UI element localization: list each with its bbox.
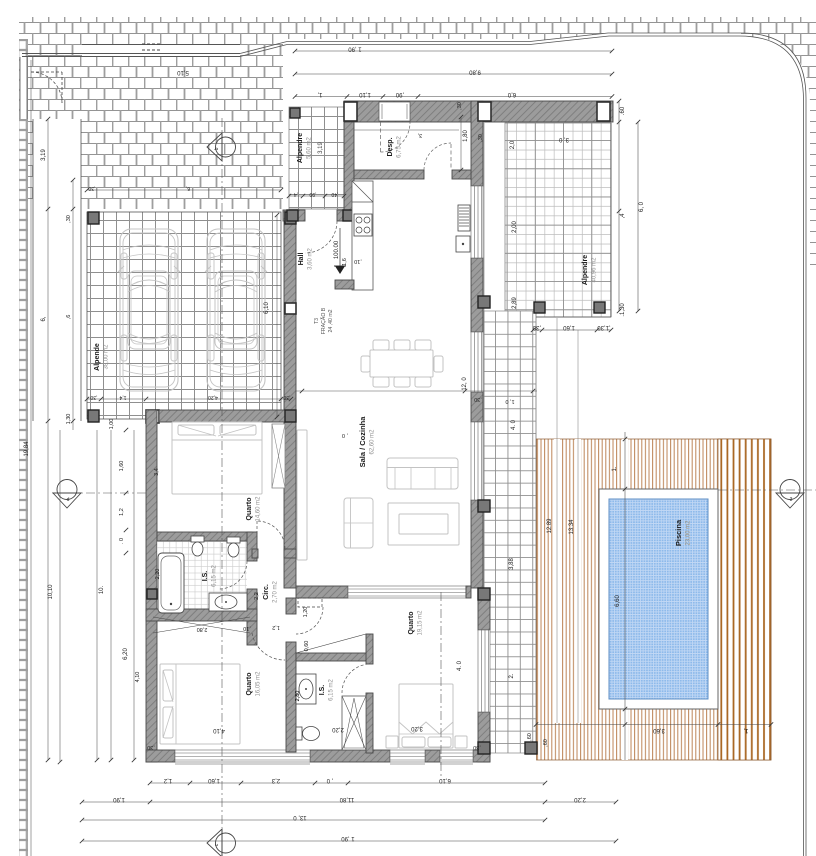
svg-text:10.: 10.	[99, 585, 105, 594]
svg-text:3,19: 3,19	[41, 149, 47, 161]
svg-text:3,20: 3,20	[411, 725, 423, 731]
svg-text:38,00 m2: 38,00 m2	[104, 344, 110, 370]
svg-text:2,89: 2,89	[512, 297, 518, 309]
svg-text:Quarto: Quarto	[408, 612, 415, 635]
svg-text:Piscina: Piscina	[674, 519, 683, 546]
svg-text:,1,30: ,1,30	[597, 324, 611, 330]
svg-text:,30: ,30	[90, 394, 97, 400]
svg-text:3,60 m2: 3,60 m2	[308, 248, 314, 270]
svg-text:3: 3	[790, 497, 793, 503]
svg-text:13, 0: 13, 0	[293, 814, 307, 820]
svg-text:,10: ,10	[354, 258, 362, 264]
svg-text:4,10: 4,10	[213, 727, 225, 733]
svg-text:,90: ,90	[395, 91, 404, 97]
svg-text:.60: .60	[620, 106, 626, 115]
svg-text:1,6: 1,6	[342, 258, 348, 266]
svg-text:1,30: 1,30	[66, 414, 72, 425]
svg-text:,60: ,60	[543, 739, 549, 747]
svg-text:3,: 3,	[417, 132, 422, 138]
svg-text:1 ,90: 1 ,90	[348, 46, 362, 52]
svg-text:Hall: Hall	[298, 253, 305, 266]
svg-text:Quarto: Quarto	[246, 498, 253, 521]
svg-text:11,80: 11,80	[339, 796, 354, 802]
svg-text:1.: 1.	[612, 466, 618, 471]
svg-text:16,05 m2: 16,05 m2	[256, 671, 262, 697]
svg-text:2,0: 2,0	[510, 140, 516, 149]
svg-text:3,88: 3,88	[509, 558, 515, 570]
svg-text:23,00 m2: 23,00 m2	[686, 520, 692, 546]
svg-text:2,00: 2,00	[512, 221, 518, 233]
svg-text:4,20: 4,20	[208, 394, 218, 400]
svg-text:1, 0: 1, 0	[505, 398, 514, 404]
svg-text:40,96 m2: 40,96 m2	[592, 257, 598, 283]
svg-text:1,: 1,	[317, 91, 322, 97]
svg-text:Sala / Cozinha: Sala / Cozinha	[358, 416, 367, 468]
svg-text:3,4: 3,4	[154, 468, 160, 476]
svg-text:5,60 m2: 5,60 m2	[307, 137, 313, 159]
svg-text:Desp.: Desp.	[387, 137, 394, 156]
svg-text:,6: ,6	[66, 315, 72, 320]
svg-text:2,80: 2,80	[295, 691, 301, 702]
svg-text:,40: ,40	[331, 191, 338, 197]
svg-text:, 0: , 0	[342, 432, 348, 438]
svg-text:1,80: 1,80	[463, 130, 469, 142]
svg-text:1 ,90: 1 ,90	[341, 835, 355, 841]
svg-text:4,10: 4,10	[135, 672, 141, 683]
svg-text:10,10: 10,10	[48, 584, 54, 600]
svg-text:4. 0: 4. 0	[511, 419, 517, 430]
svg-text:1,2: 1,2	[272, 624, 280, 630]
svg-text:1,00: 1,00	[109, 419, 115, 430]
svg-text:6,: 6,	[186, 185, 190, 191]
svg-text:,30: ,30	[532, 324, 541, 330]
svg-text:b: b	[214, 147, 220, 150]
svg-text:6,0: 6,0	[507, 91, 516, 97]
svg-text:6,75 m2: 6,75 m2	[397, 136, 403, 158]
svg-text:,4: ,4	[620, 213, 626, 219]
svg-text:19,84: 19,84	[24, 441, 30, 457]
svg-text:1,2: 1,2	[163, 777, 172, 783]
svg-text:.1,30: .1,30	[620, 303, 626, 317]
svg-text:1,4: 1,4	[119, 394, 126, 400]
svg-text:,30: ,30	[478, 134, 484, 142]
svg-text:1,60: 1,60	[208, 777, 220, 783]
svg-text:13.34: 13.34	[569, 519, 575, 535]
svg-text:1,60: 1,60	[119, 461, 125, 472]
svg-text:6,60: 6,60	[615, 595, 621, 607]
svg-text:3,19: 3,19	[318, 142, 324, 154]
svg-text:5,10: 5,10	[177, 69, 189, 75]
svg-text:6,15 m2: 6,15 m2	[212, 565, 218, 587]
svg-text:2,2: 2,2	[254, 592, 260, 600]
svg-text:Alpendre: Alpendre	[582, 255, 589, 285]
svg-text:d: d	[67, 497, 70, 503]
svg-text:2,3: 2,3	[271, 777, 280, 783]
svg-text:1,10: 1,10	[359, 91, 371, 97]
svg-text:19,15 m2: 19,15 m2	[418, 610, 424, 636]
svg-text:,30: ,30	[66, 215, 72, 223]
svg-text:12, 0: 12, 0	[462, 377, 468, 391]
svg-text:6,15 m2: 6,15 m2	[329, 679, 335, 701]
svg-text:,60: ,60	[527, 733, 533, 741]
svg-text:2,80: 2,80	[197, 626, 208, 632]
svg-text:,30: ,30	[474, 396, 482, 402]
svg-text:,90: ,90	[309, 191, 316, 197]
svg-text:1,20: 1,20	[303, 607, 309, 618]
svg-text:Circ.: Circ.	[263, 584, 270, 600]
svg-text:62,60 m2: 62,60 m2	[370, 429, 376, 455]
svg-text:14,60 m2: 14,60 m2	[256, 496, 262, 522]
svg-text:9,80: 9,80	[469, 69, 481, 75]
svg-text:I.S.: I.S.	[319, 685, 326, 696]
svg-text:1,2: 1,2	[119, 508, 125, 516]
svg-text:2.: 2.	[509, 673, 515, 678]
svg-text:Alpende: Alpende	[94, 343, 101, 371]
svg-text:FRAÇÃO B: FRAÇÃO B	[320, 307, 327, 334]
svg-text:,30: ,30	[457, 102, 463, 110]
svg-text:6,10: 6,10	[264, 302, 270, 314]
svg-text:,4: ,4	[294, 191, 298, 197]
svg-text:6,: 6,	[41, 316, 47, 321]
svg-text:T3: T3	[314, 318, 320, 324]
svg-text:. 0: . 0	[119, 538, 125, 544]
svg-text:100.00: 100.00	[334, 240, 340, 259]
svg-text:,30: ,30	[283, 394, 290, 400]
svg-text:Alpendre: Alpendre	[297, 133, 304, 163]
svg-text:Quarto: Quarto	[246, 673, 253, 696]
svg-text:24 ,40 m2: 24 ,40 m2	[328, 309, 334, 332]
svg-text:6,20: 6,20	[123, 648, 129, 660]
svg-text:1,90: 1,90	[113, 796, 125, 802]
svg-text:6,10: 6,10	[439, 777, 451, 783]
svg-text:, 0: , 0	[326, 777, 333, 783]
svg-text:3,60: 3,60	[653, 727, 665, 733]
svg-text:2,20: 2,20	[155, 569, 161, 580]
svg-text:4. 0: 4. 0	[457, 660, 463, 671]
svg-text:1,: 1,	[743, 727, 748, 733]
svg-text:I.S.: I.S.	[202, 571, 209, 582]
svg-text:6, 0: 6, 0	[639, 201, 645, 212]
svg-text:,30: ,30	[473, 744, 481, 750]
svg-text:2,20: 2,20	[574, 796, 586, 802]
svg-text:2,70 m2: 2,70 m2	[273, 581, 279, 603]
svg-text:12.89: 12.89	[547, 518, 553, 534]
svg-text:,10: ,10	[243, 625, 251, 631]
svg-text:3, 0: 3, 0	[558, 136, 569, 142]
svg-text:2,20: 2,20	[332, 726, 344, 732]
svg-text:,30: ,30	[147, 744, 155, 750]
svg-text:1,60: 1,60	[563, 324, 575, 330]
svg-text:,30: ,30	[88, 185, 95, 191]
svg-text:0,60: 0,60	[304, 641, 310, 652]
